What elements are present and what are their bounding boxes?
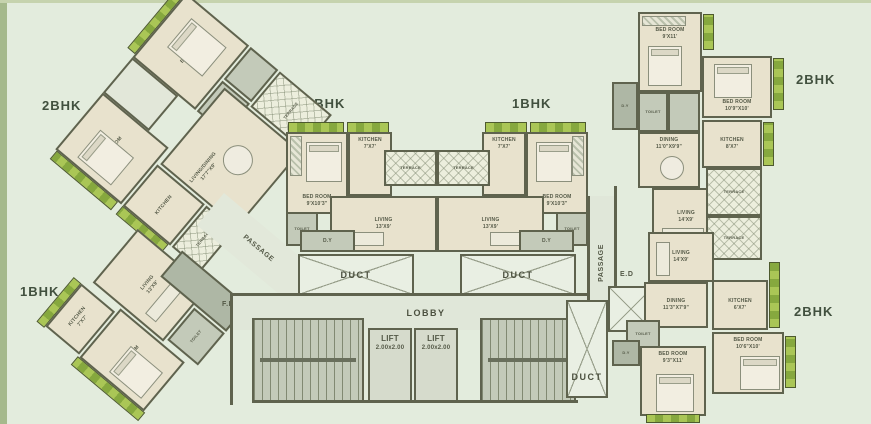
bed-icon — [740, 356, 780, 390]
lift-dim: 2.00x2.00 — [422, 345, 451, 351]
wall-segment — [614, 186, 617, 286]
stair-landing — [260, 358, 355, 362]
dy-label: D.Y — [323, 238, 332, 245]
room-dim: 10'6"X10' — [736, 344, 760, 350]
room-label: BED ROOM — [542, 194, 571, 200]
duct-label: DUCT — [341, 269, 372, 282]
stair-landing — [488, 358, 569, 362]
room-label: TOILET — [189, 329, 203, 344]
bed-icon — [167, 18, 227, 77]
room-label: KITCHEN — [358, 137, 382, 143]
room-label: KITCHEN — [67, 305, 87, 327]
room-dim: 14'X9' — [673, 257, 688, 263]
room-dim: 7'X7' — [498, 144, 510, 150]
room-dim: 13'X9' — [376, 224, 391, 230]
room-kitchen: KITCHEN 8'X7' — [702, 120, 762, 168]
wall-segment — [230, 293, 233, 405]
room-label: TERRACE — [400, 165, 421, 171]
passage-label: PASSAGE — [597, 244, 607, 282]
room-dim: 6'X7' — [734, 305, 746, 311]
room-label: LIVING — [672, 250, 690, 256]
room-toilet — [668, 92, 700, 132]
scan-edge-left — [0, 0, 7, 424]
room-label: LIVING — [482, 217, 500, 223]
room-label: KITCHEN — [720, 137, 744, 143]
sofa-icon — [656, 242, 670, 276]
room-kitchen: KITCHEN 6'X7' — [712, 280, 768, 330]
unit-label-2bhk-topleft: 2BHK — [42, 98, 81, 113]
room-dim: 11'3"X7'9" — [663, 305, 689, 311]
room-bedroom: BED ROOM 10'9"X10' — [702, 56, 772, 118]
planter-box — [769, 262, 780, 328]
lift-right: LIFT 2.00x2.00 — [414, 328, 458, 402]
room-label: LIVING/DINING — [189, 151, 218, 184]
room-terrace: TERRACE — [706, 168, 762, 216]
duct-left: DUCT — [298, 254, 414, 296]
room-label: DINING — [660, 137, 679, 143]
room-bedroom: BED ROOM 9'3"X11' — [640, 346, 706, 416]
planter-box — [646, 414, 700, 423]
room-terrace: TERRACE — [437, 150, 490, 186]
unit-label-1bhk-centerright: 1BHK — [512, 96, 551, 111]
duct-right-tall: DUCT — [566, 300, 608, 398]
room-dim: 7'X7' — [364, 144, 376, 150]
lift-dim: 2.00x2.00 — [376, 345, 405, 351]
room-label: TOILET — [645, 109, 660, 115]
room-dim: 13'X9' — [483, 224, 498, 230]
bed-icon — [648, 46, 682, 86]
ed-label: E.D — [620, 270, 633, 280]
room-label: BED ROOM — [733, 337, 762, 343]
room-dim: 9'X10'3" — [307, 201, 328, 207]
lobby-label: LOBBY — [407, 307, 446, 320]
room-label: LIVING — [677, 210, 695, 216]
planter-box — [703, 14, 714, 50]
room-label: TOILET — [635, 331, 650, 337]
room-toilet: TOILET — [638, 92, 668, 132]
unit-label-1bhk-bottomleft: 1BHK — [20, 284, 59, 299]
room-label: TERRACE — [724, 189, 745, 195]
room-label: KITCHEN — [728, 298, 752, 304]
wardrobe — [290, 136, 302, 176]
staircase-left — [252, 318, 364, 402]
dy-label: D.Y — [542, 238, 551, 245]
unit-label-2bhk-bottomright: 2BHK — [794, 304, 833, 319]
dy-label: D.Y — [622, 350, 629, 356]
duct-label: DUCT — [503, 269, 534, 282]
room-bedroom: BED ROOM 9'X11' — [638, 12, 702, 92]
room-terrace: TERRACE — [706, 216, 762, 260]
bed-icon — [536, 142, 572, 182]
duct-right: DUCT — [460, 254, 576, 296]
wardrobe — [642, 16, 686, 26]
room-dim: 9'3"X11' — [663, 358, 684, 364]
dining-table-icon — [217, 139, 259, 181]
room-label: BED ROOM — [302, 194, 331, 200]
room-label: LIVING — [375, 217, 393, 223]
room-dy: D.Y — [612, 340, 640, 366]
passage-label: PASSAGE — [240, 233, 275, 265]
lift-label: LIFT — [427, 334, 445, 343]
room-dim: 11'0"X9'9" — [656, 144, 682, 150]
room-label: BED ROOM — [658, 351, 687, 357]
duct-label: DUCT — [572, 371, 603, 384]
room-bedroom: BED ROOM 10'6"X10' — [712, 332, 784, 394]
wardrobe — [572, 136, 584, 176]
room-dim: 9'X10'3" — [547, 201, 568, 207]
wall-segment — [230, 293, 620, 296]
room-dim: 13'X9' — [145, 279, 159, 295]
lift-left: LIFT 2.00x2.00 — [368, 328, 412, 402]
room-terrace: TERRACE — [384, 150, 437, 186]
room-label: KITCHEN — [153, 194, 174, 217]
room-dim: 14'X9' — [678, 217, 693, 223]
planter-box — [763, 122, 774, 166]
room-dim: 9'X11' — [663, 34, 678, 40]
room-label: KITCHEN — [492, 137, 516, 143]
bed-icon — [656, 374, 694, 412]
room-dim: 7'X7' — [76, 314, 88, 327]
room-label: TERRACE — [724, 235, 745, 241]
room-label: TERRACE — [282, 101, 300, 120]
room-dim: 17'7"X9' — [199, 162, 217, 182]
room-dining: DINING 11'0"X9'9" — [638, 132, 700, 188]
dy-label: D.Y — [621, 103, 628, 109]
dining-table-icon — [660, 156, 684, 180]
room-label: DINING — [667, 298, 686, 304]
room-dim: 10'9"X10' — [725, 106, 749, 112]
staircase-right — [480, 318, 576, 402]
floor-plan-canvas: 2BHK 1BHK 1BHK 2BHK 1BHK 2BHK BED ROOM B… — [0, 0, 871, 424]
room-living: LIVING 14'X9' — [648, 232, 714, 282]
room-label: LIVING — [139, 274, 155, 292]
planter-box — [785, 336, 796, 388]
planter-box — [773, 58, 784, 110]
unit-label-2bhk-topright: 2BHK — [796, 72, 835, 87]
room-dy: D.Y — [300, 230, 355, 252]
room-dy: D.Y — [612, 82, 638, 130]
room-label: TERRACE — [453, 165, 474, 171]
room-dy: D.Y — [519, 230, 574, 252]
room-label: BED ROOM — [655, 27, 684, 33]
room-dim: 8'X7' — [726, 144, 738, 150]
scan-edge-top — [0, 0, 871, 3]
bed-icon — [714, 64, 752, 98]
room-label: BED ROOM — [722, 99, 751, 105]
bed-icon — [306, 142, 342, 182]
lift-label: LIFT — [381, 334, 399, 343]
